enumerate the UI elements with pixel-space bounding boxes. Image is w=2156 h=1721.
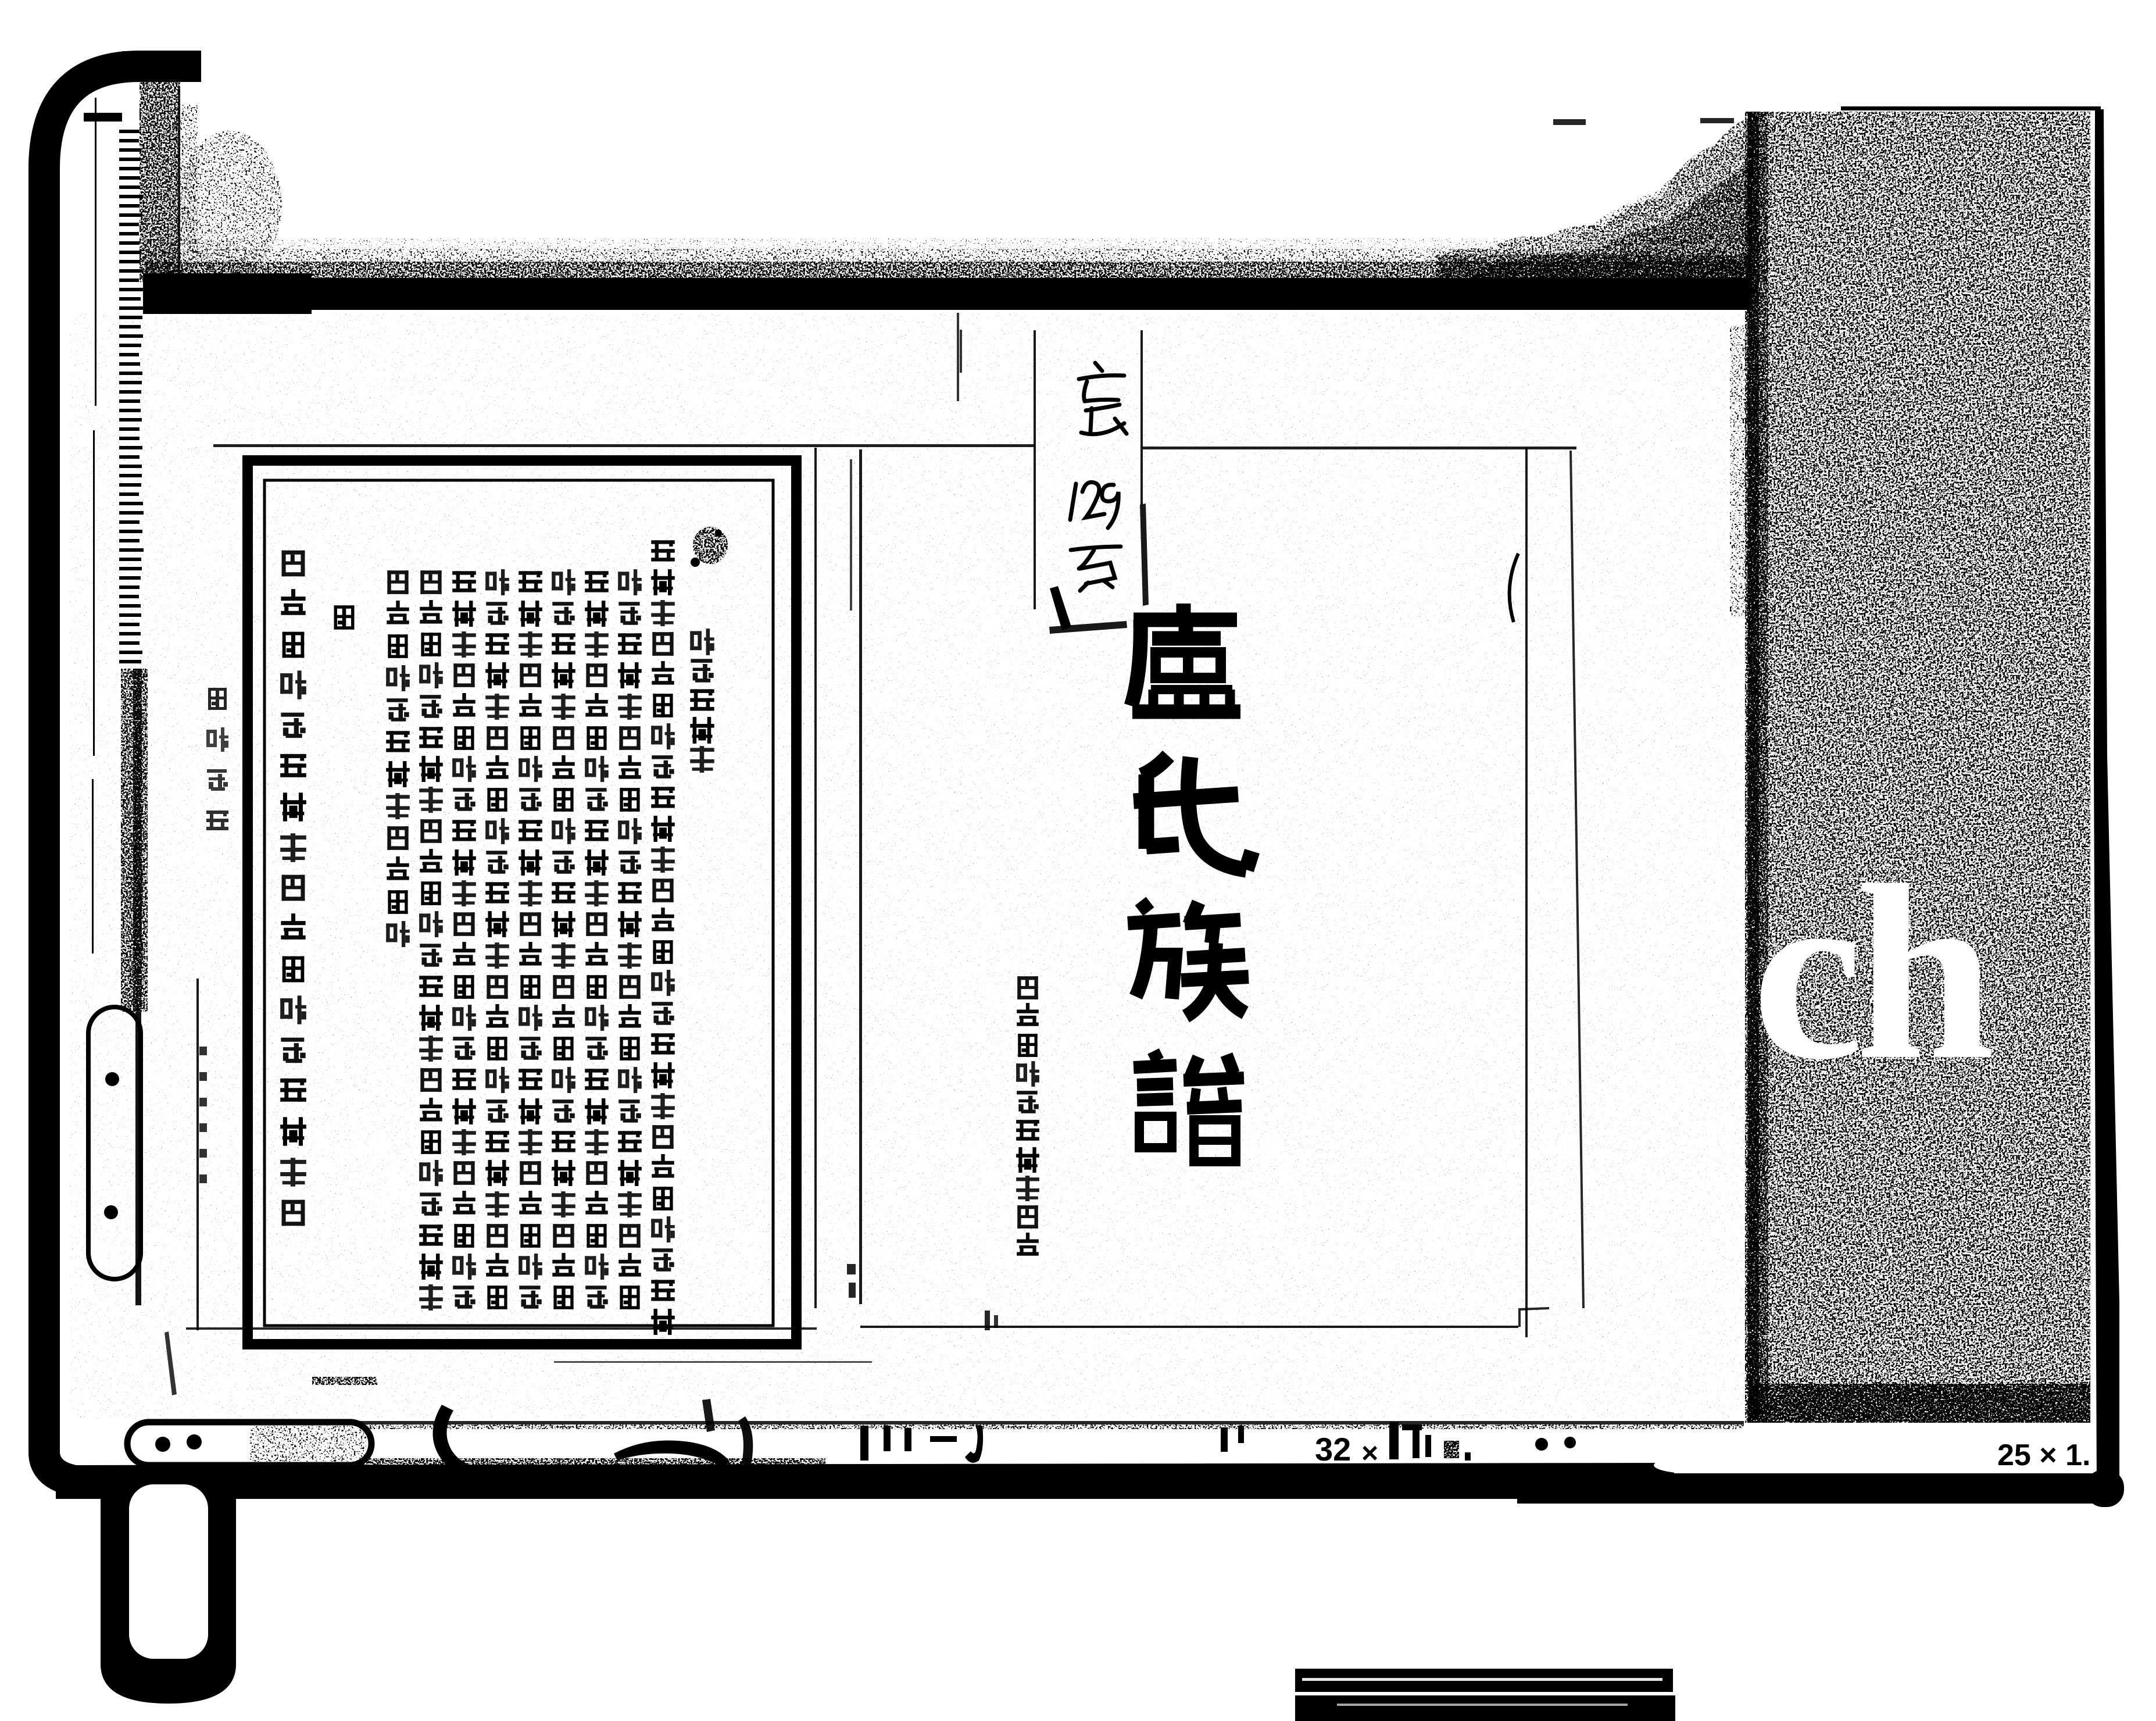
svg-text:32: 32 [1315, 1431, 1351, 1468]
svg-text:ch: ch [1752, 834, 1993, 1112]
svg-text:25 × 1.: 25 × 1. [1997, 1438, 2090, 1472]
svg-text:×: × [1361, 1437, 1378, 1469]
